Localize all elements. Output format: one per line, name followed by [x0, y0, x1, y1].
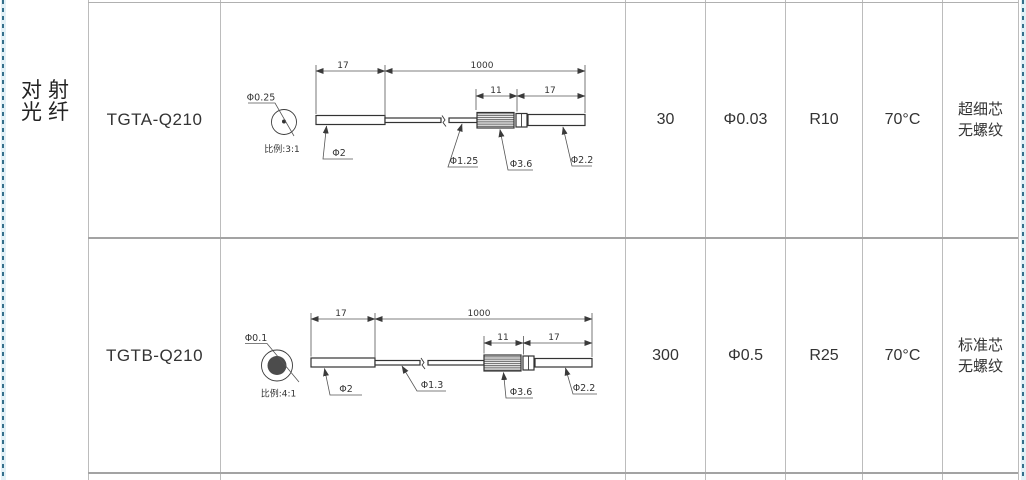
table-row-divider	[88, 472, 1018, 474]
dia-head-label: Φ2	[339, 384, 353, 395]
core-diameter-label: Φ0.1	[245, 333, 268, 344]
value-text: Φ0.03	[724, 111, 768, 129]
dim-tail-length: 17	[548, 333, 559, 343]
value-cell-1: 30	[626, 2, 705, 237]
scale-label: 比例:3:1	[264, 143, 300, 155]
value-text: 70°C	[885, 347, 921, 365]
dimension-lines: 17 1000 11 17	[311, 309, 592, 359]
technical-drawing: Φ0.25 比例:3:1	[220, 2, 625, 237]
dim-cable-length: 1000	[468, 309, 491, 319]
table-grid-line	[1018, 0, 1019, 480]
cable	[385, 118, 441, 123]
tail-tube	[528, 115, 585, 126]
catalog-page: 对射 光纤 TGTA-Q210 Φ0.25 比例:3:1	[0, 0, 1026, 480]
dia-cable-label: Φ1.3	[421, 380, 444, 391]
page-cut-line-right	[1021, 0, 1026, 480]
value-cell-2: Φ0.5	[706, 239, 785, 472]
note-line: 超细芯	[958, 99, 1003, 120]
value-text: R25	[809, 347, 838, 365]
fiber-drawing-row1: Φ0.25 比例:3:1	[220, 2, 625, 237]
fiber-drawing-row2: Φ0.1 比例:4:1	[220, 237, 625, 472]
diameter-leaders: Φ2 Φ1.25 Φ3.6 Φ2.2	[323, 124, 593, 170]
cable	[375, 361, 420, 366]
dia-tail-label: Φ2.2	[573, 383, 596, 394]
dia-cable-label: Φ1.25	[450, 156, 479, 167]
dia-tail-label: Φ2.2	[571, 155, 594, 166]
fiber-body	[316, 113, 585, 129]
head-tube	[316, 116, 385, 125]
note-cell: 标准芯 无螺纹	[943, 239, 1018, 472]
value-cell-1: 300	[626, 239, 705, 472]
note-cell: 超细芯 无螺纹	[943, 2, 1018, 237]
dim-head-length: 17	[337, 61, 348, 71]
scale-label: 比例:4:1	[261, 388, 297, 400]
dimension-lines: 17 1000 11 17	[316, 61, 585, 117]
head-tube	[311, 358, 375, 367]
model-name: TGTB-Q210	[106, 346, 203, 366]
value-text: 70°C	[885, 111, 921, 129]
cable	[449, 118, 477, 123]
note-line: 无螺纹	[958, 120, 1003, 141]
note-line: 标准芯	[958, 335, 1003, 356]
category-line: 对射	[10, 80, 80, 102]
value-text: Φ0.5	[728, 347, 763, 365]
technical-drawing: Φ0.1 比例:4:1	[220, 237, 625, 472]
model-cell: TGTA-Q210	[89, 2, 220, 237]
cable	[428, 361, 484, 366]
fiber-cross-section: Φ0.25 比例:3:1	[247, 93, 300, 156]
dia-sleeve-label: Φ3.6	[510, 159, 533, 170]
dim-sleeve-length: 11	[490, 86, 501, 96]
dim-sleeve-length: 11	[497, 333, 508, 343]
note-line: 无螺纹	[958, 356, 1003, 377]
knurled-sleeve	[484, 355, 521, 371]
diameter-leaders: Φ2 Φ1.3 Φ3.6 Φ2.2	[325, 366, 598, 398]
fiber-body	[311, 355, 592, 371]
break-symbol	[421, 358, 425, 369]
value-text: 30	[657, 111, 675, 129]
dim-cable-length: 1000	[471, 61, 494, 71]
tail-tube	[535, 359, 592, 368]
fiber-cross-section: Φ0.1 比例:4:1	[245, 333, 299, 400]
value-cell-4: 70°C	[863, 239, 942, 472]
dia-head-label: Φ2	[332, 148, 346, 159]
model-name: TGTA-Q210	[107, 110, 203, 130]
break-symbol	[442, 116, 446, 127]
model-cell: TGTB-Q210	[89, 239, 220, 472]
value-text: 300	[652, 347, 679, 365]
dashed-line	[1022, 0, 1024, 480]
value-cell-2: Φ0.03	[706, 2, 785, 237]
page-cut-line-left	[1, 0, 6, 480]
knurled-sleeve	[477, 113, 514, 129]
core-diameter-label: Φ0.25	[247, 93, 276, 104]
category-label: 对射 光纤	[10, 80, 80, 124]
value-cell-4: 70°C	[863, 2, 942, 237]
dim-head-length: 17	[335, 309, 346, 319]
value-cell-3: R10	[786, 2, 862, 237]
dashed-line	[2, 0, 4, 480]
value-text: R10	[809, 111, 838, 129]
category-line: 光纤	[10, 102, 80, 124]
dim-tail-length: 17	[544, 86, 555, 96]
value-cell-3: R25	[786, 239, 862, 472]
dia-sleeve-label: Φ3.6	[510, 387, 533, 398]
